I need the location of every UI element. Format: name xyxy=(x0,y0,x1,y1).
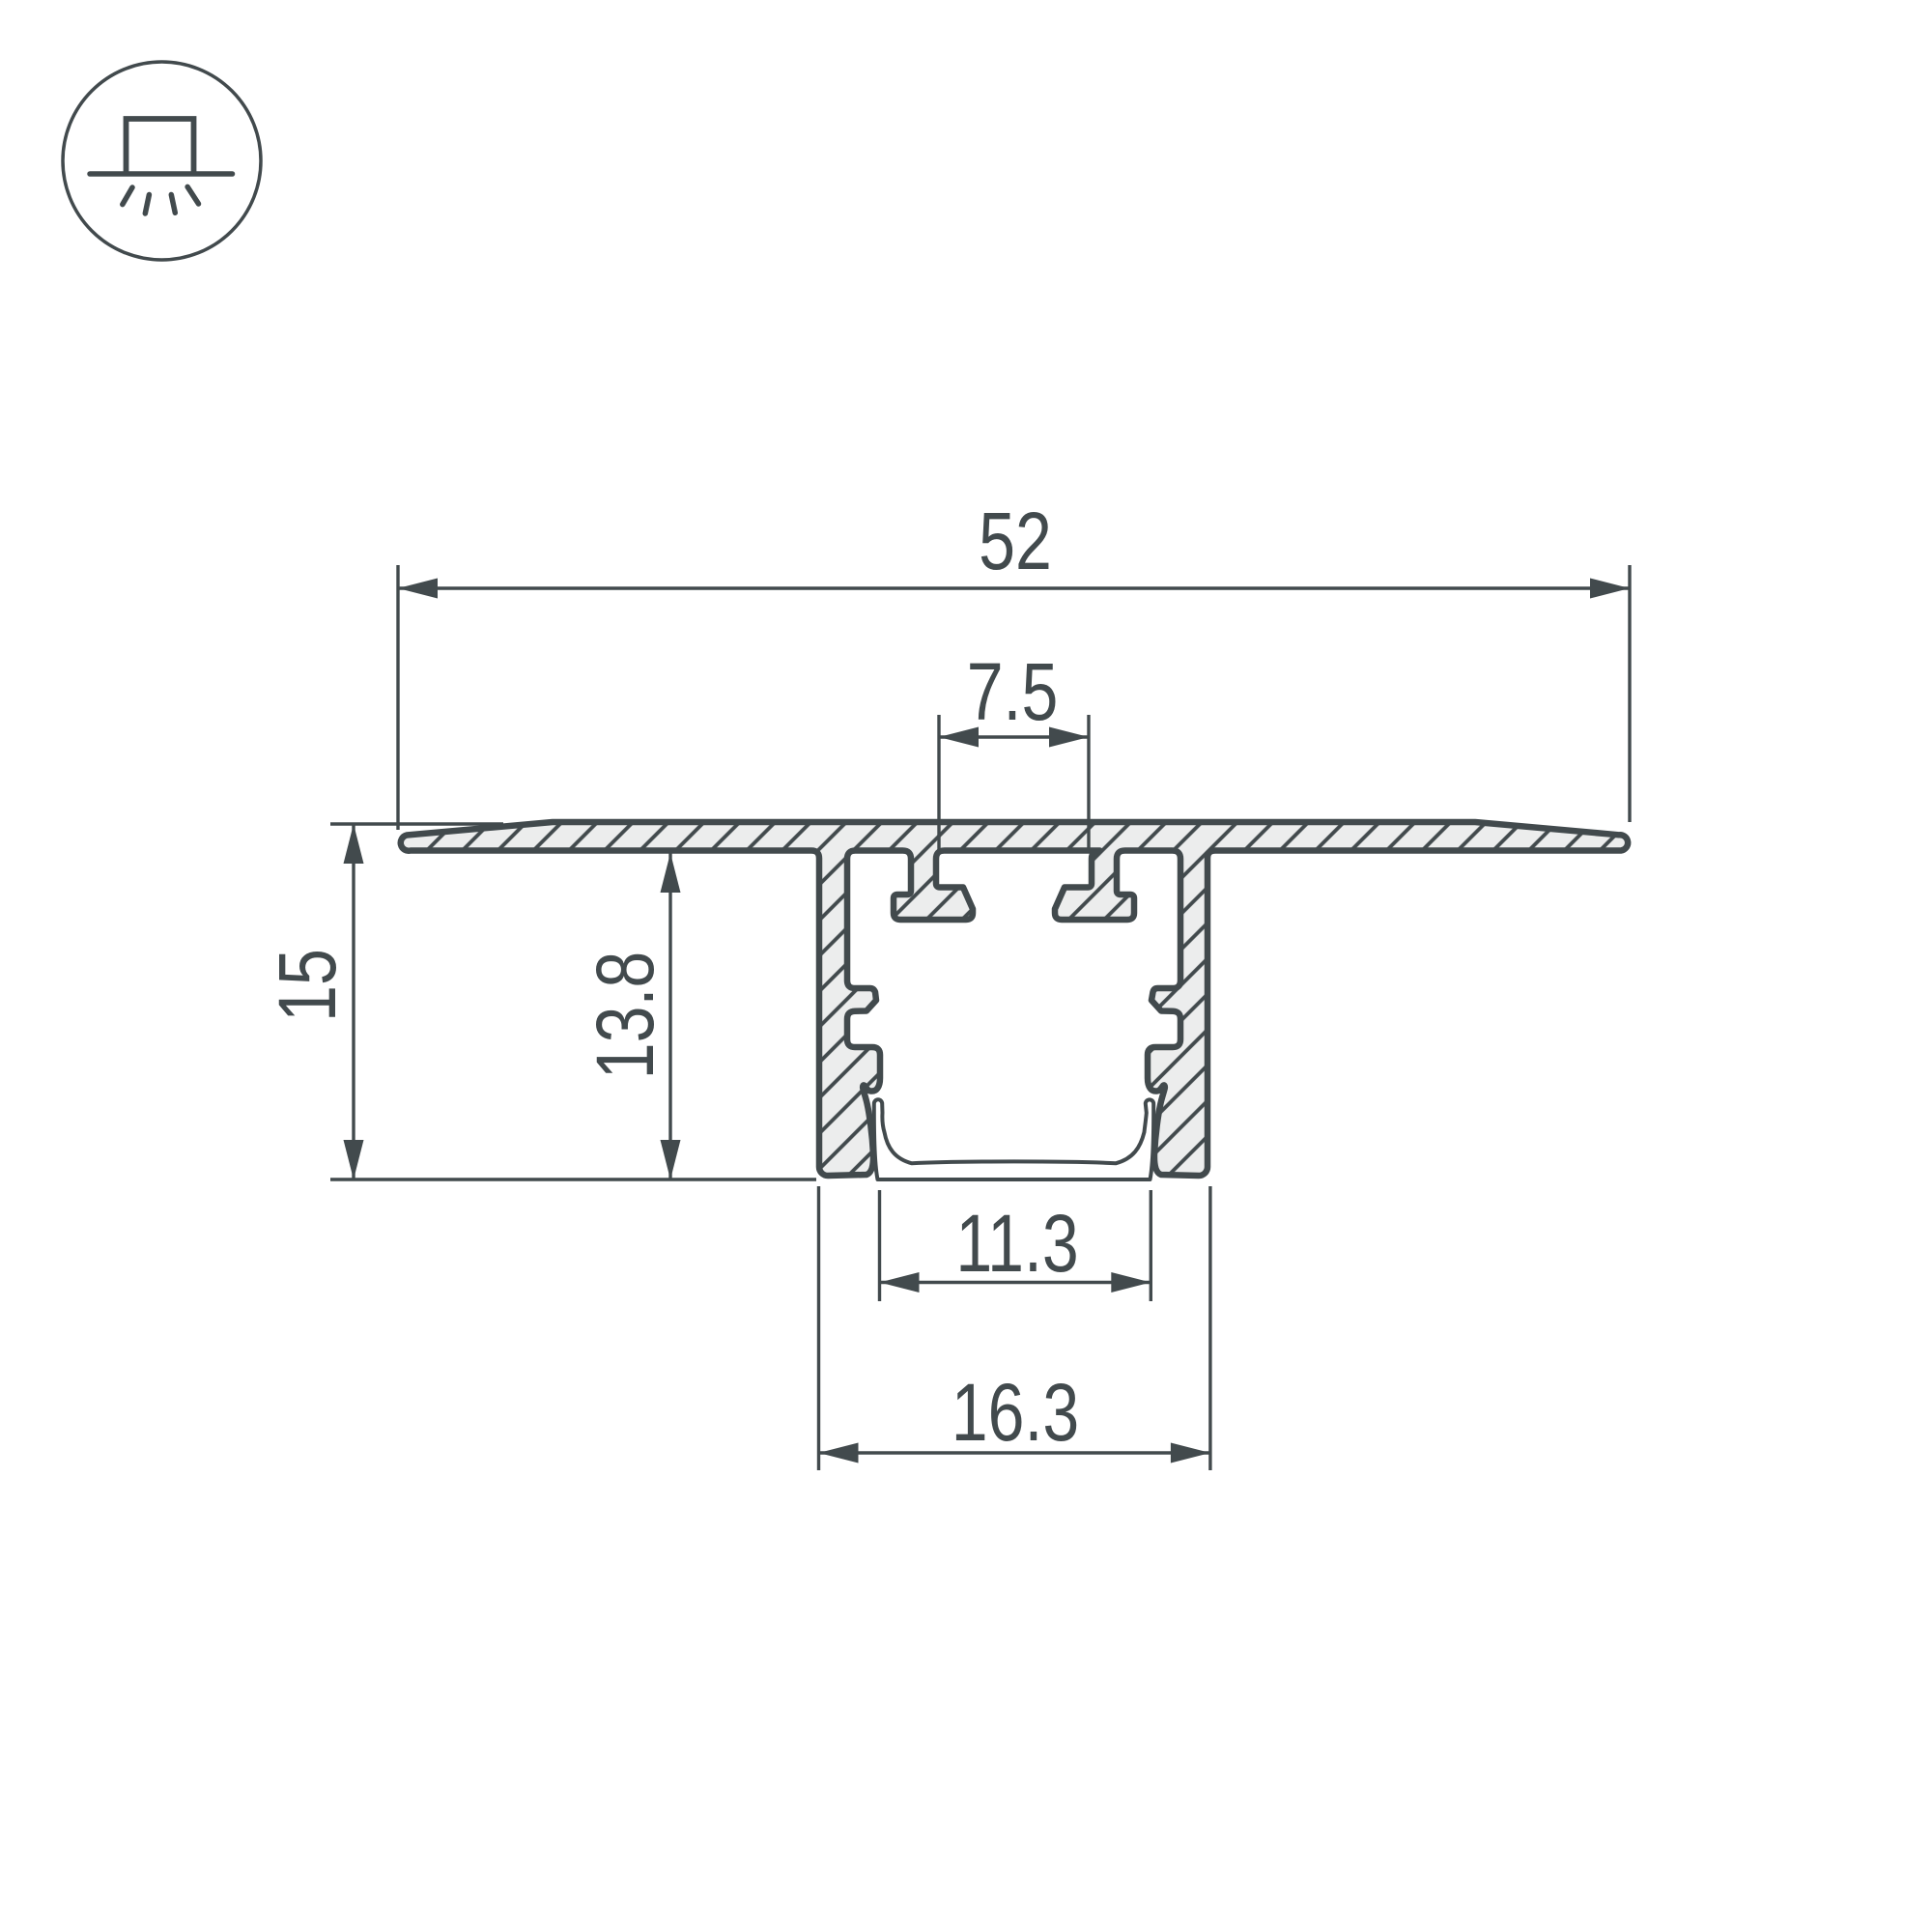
svg-text:15: 15 xyxy=(263,949,353,1022)
svg-text:7.5: 7.5 xyxy=(967,647,1059,737)
svg-text:11.3: 11.3 xyxy=(955,1199,1078,1289)
svg-text:52: 52 xyxy=(979,497,1052,586)
svg-text:16.3: 16.3 xyxy=(952,1368,1079,1458)
svg-text:13.8: 13.8 xyxy=(581,952,670,1079)
